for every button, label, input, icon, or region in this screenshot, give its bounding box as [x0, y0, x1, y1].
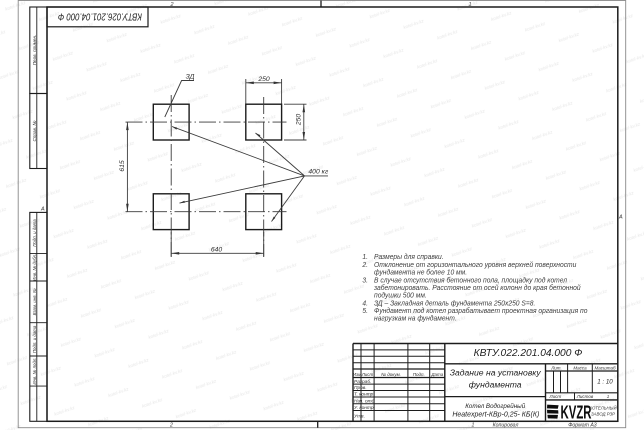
svg-text:1: 1 [468, 2, 471, 8]
svg-text:ЗД – Закладная деталь фундамен: ЗД – Закладная деталь фундамента 250х250… [374, 299, 535, 307]
svg-text:Утв.: Утв. [354, 414, 365, 420]
svg-text:Heatexpert-КВр-0,25- КБ(К): Heatexpert-КВр-0,25- КБ(К) [452, 412, 539, 419]
svg-text:2: 2 [169, 2, 173, 8]
svg-text:Подп. и дата: Подп. и дата [32, 219, 37, 247]
svg-text:Лист: Лист [361, 372, 374, 377]
svg-text:Фундамент под котел разрабатыв: Фундамент под котел разрабатывает проект… [374, 307, 588, 315]
svg-text:Подп. и дата: Подп. и дата [32, 325, 37, 353]
svg-text:Лист: Лист [549, 394, 562, 399]
svg-text:ЗД: ЗД [186, 73, 195, 80]
svg-text:Разраб.: Разраб. [354, 379, 371, 385]
svg-text:Инв. № дубл.: Инв. № дубл. [32, 254, 37, 281]
svg-text:Копировал: Копировал [493, 422, 519, 428]
svg-text:КВТУ.026.201.04.000 Ф: КВТУ.026.201.04.000 Ф [58, 10, 142, 21]
svg-text:Задание на установку: Задание на установку [450, 368, 542, 378]
svg-text:1.: 1. [362, 254, 368, 261]
svg-text:В случае отсутствия бетонного: В случае отсутствия бетонного пола, площ… [374, 276, 567, 284]
svg-text:ЗАВОД РЗР: ЗАВОД РЗР [591, 412, 615, 417]
svg-text:Размеры для справки.: Размеры для справки. [374, 253, 444, 261]
svg-text:А: А [40, 207, 45, 213]
svg-text:фундамента не более 10 мм.: фундамента не более 10 мм. [374, 268, 467, 276]
svg-text:Подп.: Подп. [413, 372, 425, 377]
svg-text:Т. контр.: Т. контр. [354, 392, 375, 398]
svg-text:640: 640 [211, 247, 223, 254]
svg-text:Справ. №: Справ. № [32, 121, 37, 142]
svg-text:Инв. № подл.: Инв. № подл. [32, 357, 37, 384]
svg-text:2.: 2. [361, 262, 368, 269]
svg-text:Лит.: Лит. [550, 366, 562, 371]
svg-text:250: 250 [296, 114, 303, 127]
svg-text:4.: 4. [362, 300, 368, 307]
svg-text:Формат А3: Формат А3 [568, 422, 596, 428]
svg-text:Котел Водогрейный: Котел Водогрейный [465, 403, 525, 410]
svg-text:нагрузкам на фундамент.: нагрузкам на фундамент. [374, 315, 457, 323]
svg-text:Взам. инв. №: Взам. инв. № [32, 288, 37, 315]
svg-text:615: 615 [119, 160, 126, 172]
svg-text:подушки 500 мм.: подушки 500 мм. [374, 292, 427, 300]
svg-text:забетонировать. Расстояние от: забетонировать. Расстояние от осей колон… [373, 284, 581, 292]
svg-text:KVZR: KVZR [561, 402, 592, 423]
svg-text:5.: 5. [362, 308, 368, 315]
svg-text:1: 1 [472, 422, 475, 428]
svg-text:Изм: Изм [353, 372, 361, 377]
svg-text:фундамента: фундамента [469, 380, 522, 390]
svg-text:Масса: Масса [573, 366, 587, 371]
svg-text:Дата: Дата [430, 372, 443, 377]
svg-text:Листов: Листов [576, 394, 594, 399]
svg-text:№ докум.: № докум. [381, 372, 401, 377]
svg-text:Масштаб: Масштаб [594, 366, 615, 371]
svg-text:400 кг: 400 кг [308, 168, 328, 175]
svg-text:1 : 10: 1 : 10 [597, 378, 613, 385]
svg-text:У. контр.: У. контр. [354, 405, 375, 411]
svg-text:КОТЕЛЬНЫЙ: КОТЕЛЬНЫЙ [589, 406, 617, 411]
svg-text:Пров.: Пров. [354, 385, 367, 391]
svg-text:Перв. примен.: Перв. примен. [32, 35, 37, 66]
svg-text:Нач. отд: Нач. отд [354, 399, 375, 405]
svg-text:Отклонение от горизонтального: Отклонение от горизонтального уровня вер… [374, 261, 577, 269]
svg-text:А: А [618, 215, 623, 221]
svg-text:2: 2 [169, 422, 173, 428]
svg-text:3.: 3. [362, 277, 368, 284]
svg-text:КВТУ.022.201.04.000 Ф: КВТУ.022.201.04.000 Ф [474, 348, 583, 359]
svg-text:250: 250 [257, 76, 270, 83]
